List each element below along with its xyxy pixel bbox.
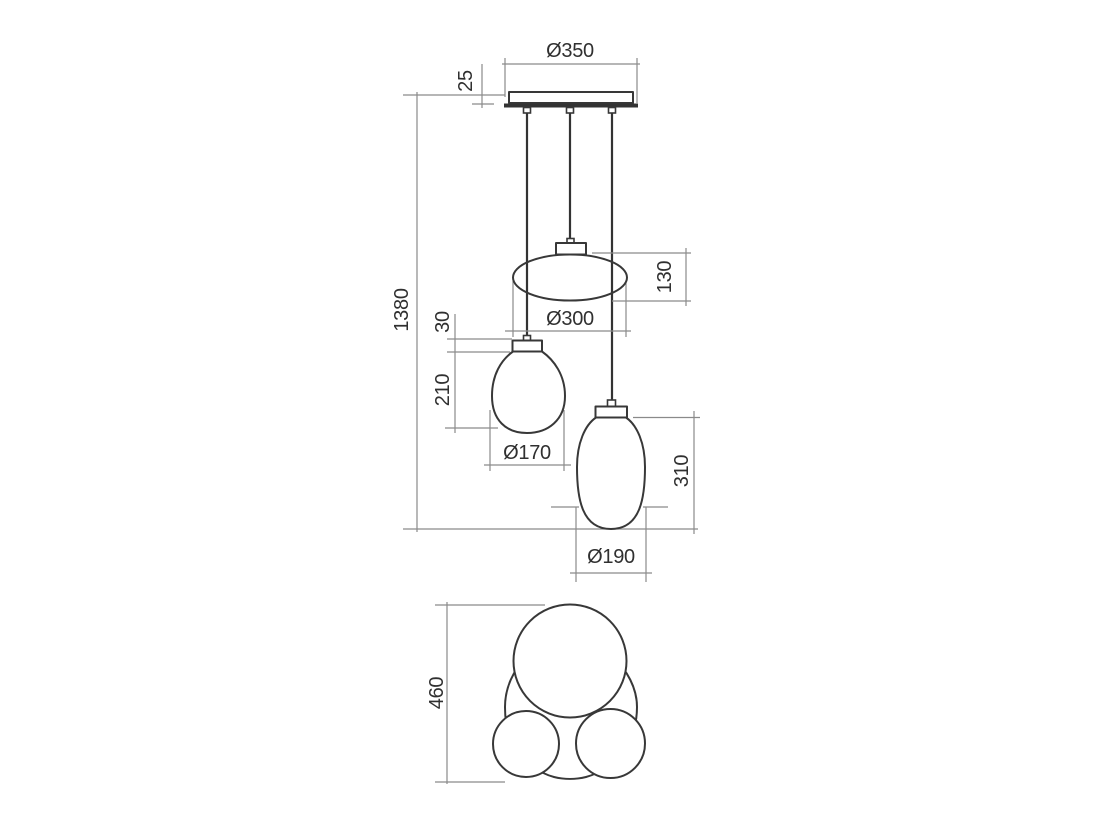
dim-label-oval-shade-height: 130	[654, 261, 676, 294]
front-view: 1380 Ø350 25	[391, 40, 700, 582]
top-view-teardrop-shade-circle	[493, 711, 559, 777]
ovoid-shade	[577, 418, 645, 530]
dim-label-canopy-height: 25	[455, 70, 477, 92]
top-view-ovoid-shade-circle	[576, 709, 645, 778]
dim-label-oval-shade-diameter: Ø300	[546, 308, 594, 330]
cord-grip-right	[609, 108, 616, 114]
teardrop-shade-cap	[513, 341, 543, 352]
dim-label-top-view-height: 460	[426, 677, 448, 710]
teardrop-shade	[492, 352, 565, 434]
dim-label-canopy-diameter: Ø350	[546, 40, 594, 62]
dim-label-ovoid-shade-diameter: Ø190	[587, 546, 635, 568]
top-view: 460	[426, 602, 645, 784]
dimension-canopy-height: 25	[455, 64, 494, 108]
oval-shade	[513, 255, 627, 301]
dim-label-teardrop-height: 210	[432, 374, 454, 407]
ovoid-shade-cap	[596, 407, 628, 418]
dim-label-ovoid-shade-height: 310	[671, 455, 693, 488]
dim-label-teardrop-diameter: Ø170	[503, 442, 551, 464]
canopy-plate	[509, 92, 633, 103]
cord-grip-middle	[567, 108, 574, 114]
dimension-oval-shade-height: 130	[592, 248, 691, 306]
oval-shade-cap	[556, 243, 586, 255]
technical-drawing-page: 1380 Ø350 25	[0, 0, 1100, 825]
dim-label-overall-height: 1380	[391, 288, 413, 331]
dim-label-teardrop-cap-height: 30	[432, 311, 454, 333]
top-view-oval-shade-circle	[514, 605, 627, 718]
cord-grip-left	[524, 108, 531, 114]
pendant-lamp-dimension-drawing: 1380 Ø350 25	[0, 0, 1100, 825]
